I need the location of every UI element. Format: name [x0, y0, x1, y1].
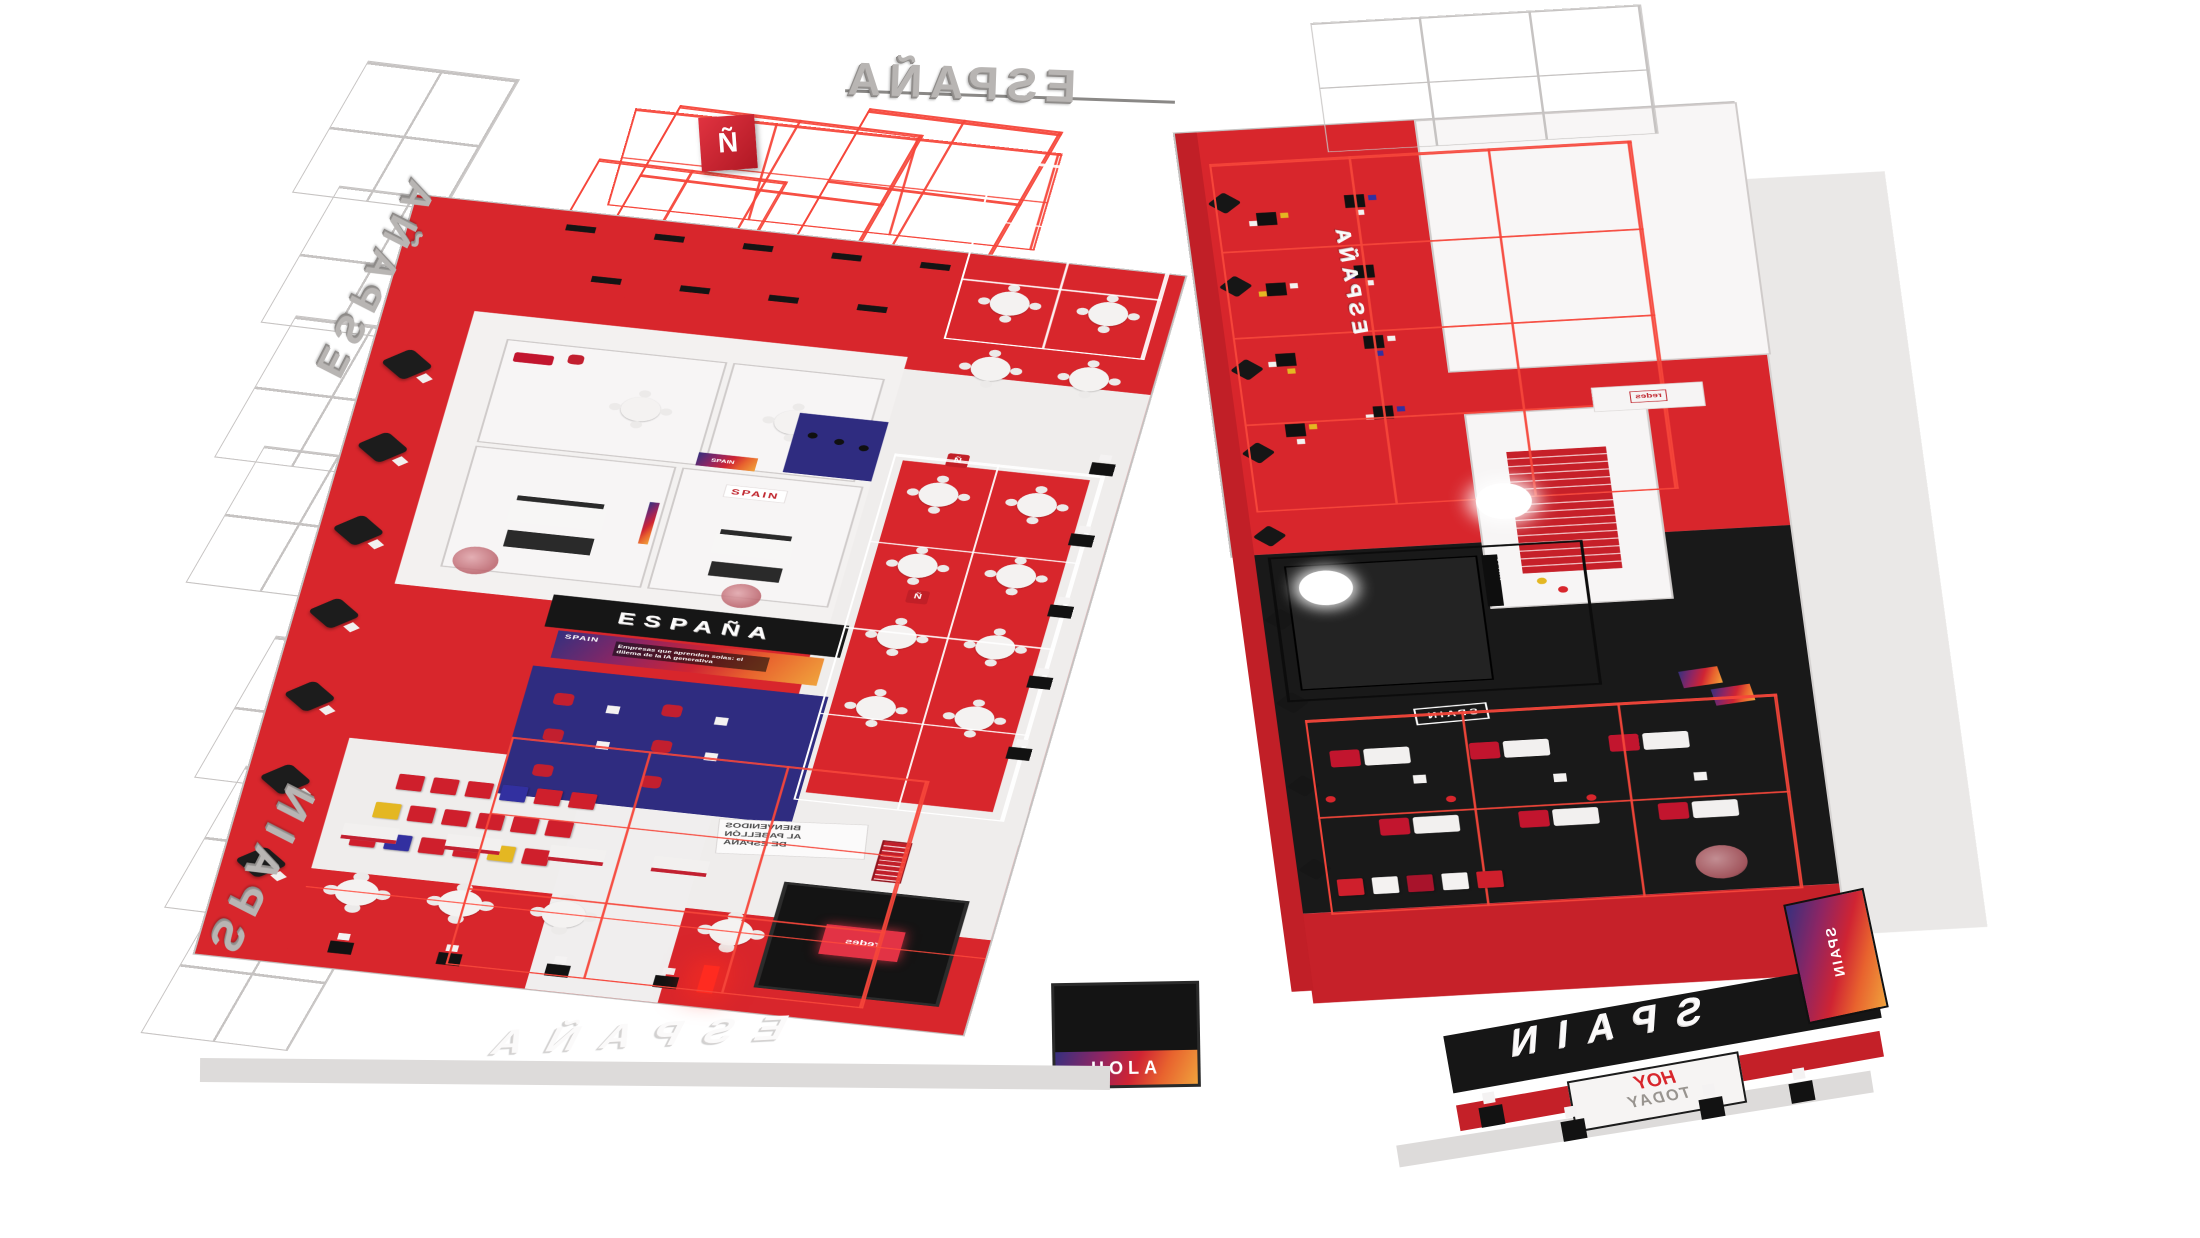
monitor-station: [327, 940, 354, 954]
cube-stool: [372, 802, 402, 820]
monitor-station: [1005, 747, 1032, 761]
workstation-desk: [847, 308, 894, 327]
workstation-desk: [821, 257, 868, 276]
monitor-station: [1068, 533, 1095, 547]
screen-brand: SPAIN: [710, 457, 735, 465]
overhead-wireframe-grid: [1310, 4, 1658, 152]
conference-table: [506, 500, 607, 531]
red-armchair: [660, 704, 683, 718]
workstation-desk: [644, 238, 691, 257]
n-cube-letter: Ñ: [717, 126, 739, 158]
ceiling-red-grid: [446, 737, 930, 1009]
workstation-desk: [733, 247, 780, 266]
workstation-desk: [670, 289, 717, 308]
work-pod: [308, 597, 361, 629]
work-pod: [356, 431, 409, 463]
stage-screen-brand: SPAIN: [564, 634, 600, 644]
workstation-desk: [758, 299, 805, 318]
render-canvas: { "scene": { "description": "Two isometr…: [0, 0, 2200, 1238]
cube-stool: [395, 774, 425, 792]
kitchen-truss: [1268, 540, 1602, 702]
workstation-desk: [581, 280, 628, 299]
work-pod: [381, 348, 434, 380]
cube-seat: [1476, 870, 1504, 888]
pendant-lamp: [833, 439, 845, 446]
cube-seat: [1441, 872, 1469, 890]
red-armchair: [567, 354, 586, 365]
cube-stool: [464, 781, 494, 799]
round-table: [617, 395, 663, 423]
cube-stool: [417, 837, 447, 855]
monitor-station: [1560, 1118, 1587, 1142]
monitor-station: [1478, 1104, 1505, 1128]
monitor-station: [1698, 1096, 1725, 1120]
monitor-station: [1047, 604, 1074, 618]
side-table: [714, 717, 729, 726]
cube-stool: [430, 777, 460, 795]
pendant-lamp: [807, 432, 819, 439]
work-pod: [283, 680, 336, 712]
overhead-letters: ESPAÑA: [839, 51, 1077, 113]
base-apron: [200, 1058, 1110, 1090]
work-pod: [332, 514, 385, 546]
counter-sign: redes: [1629, 389, 1667, 403]
cube-seat: [1371, 876, 1399, 894]
right-pavilion-plan: redes SPAIN SPAIN: [1171, 69, 2004, 1107]
cube-seat: [1406, 874, 1434, 892]
workstation-desk: [555, 228, 602, 247]
spain-wall-logo: SPAIN: [723, 484, 788, 503]
wall-poster-brand: SPAIN: [1822, 926, 1848, 980]
ceiling-red-grid: [1209, 140, 1679, 512]
pendant-lamp: [858, 445, 870, 452]
monitor-station: [1788, 1080, 1815, 1104]
side-table: [605, 705, 620, 714]
today-sign-text: HOY TODAY: [1621, 1063, 1691, 1113]
monitor-station: [1089, 462, 1116, 476]
workstation-desk: [910, 266, 957, 285]
conference-table: [710, 533, 794, 560]
n-cube: Ñ: [698, 114, 758, 172]
red-sofa: [512, 352, 554, 366]
entrance-floor-letters: ESPAÑA: [460, 1008, 796, 1064]
cube-stool: [406, 805, 436, 823]
cube-stool: [441, 809, 471, 827]
bar-nook: [783, 413, 889, 482]
monitor-station: [1026, 675, 1053, 689]
cube-seat: [1337, 878, 1365, 896]
red-armchair: [552, 692, 575, 706]
